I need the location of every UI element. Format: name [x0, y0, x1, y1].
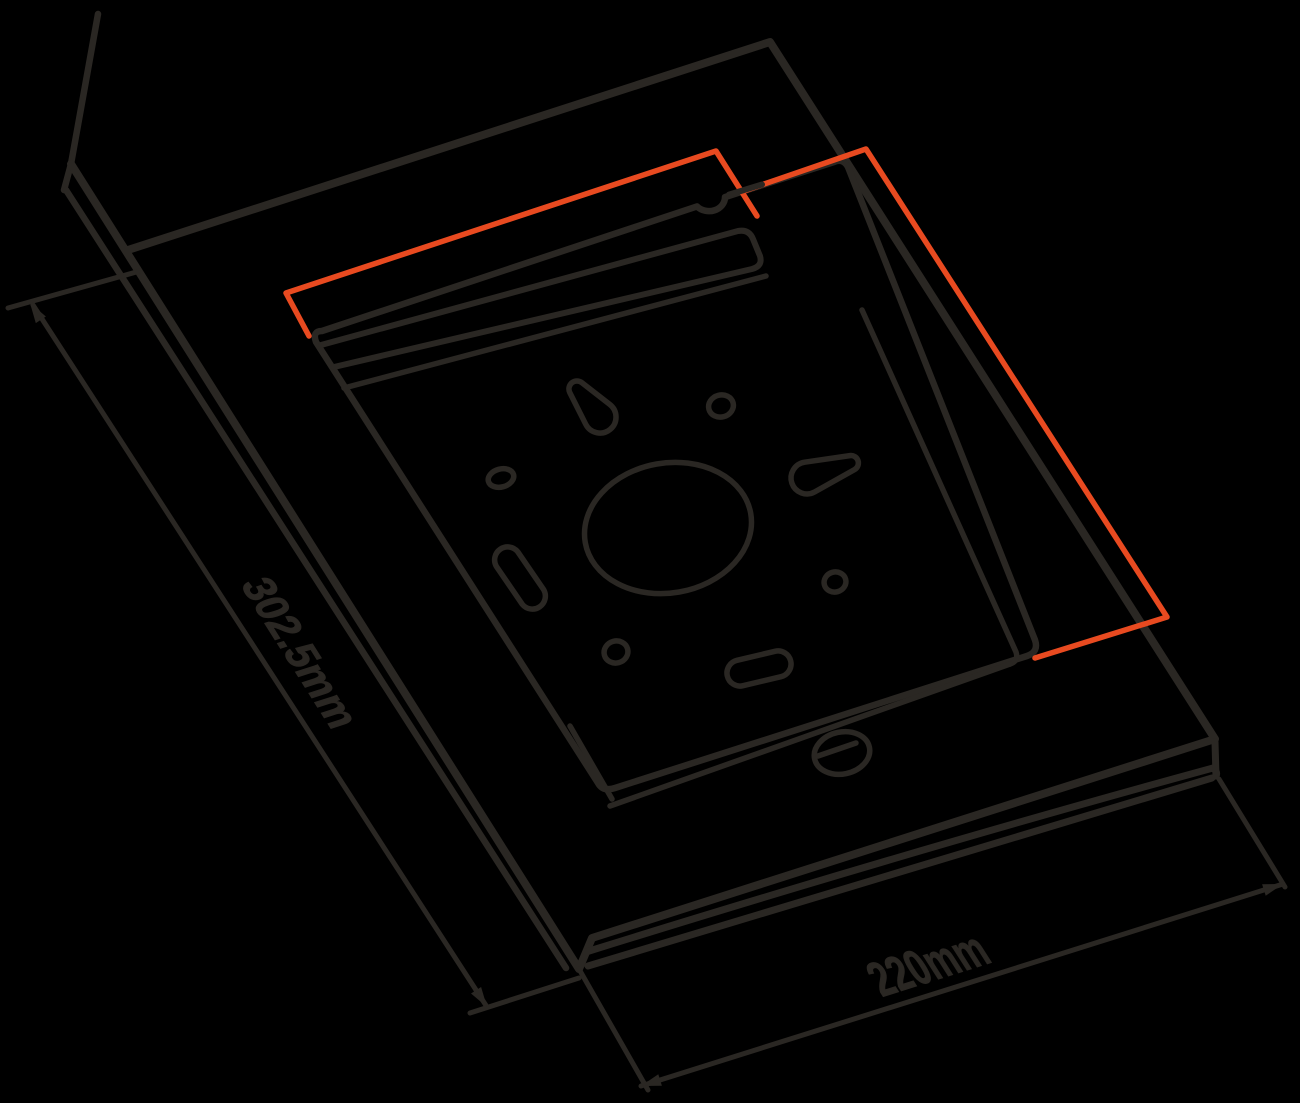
- svg-text:220mm: 220mm: [857, 923, 1000, 1007]
- svg-text:302.5mm: 302.5mm: [231, 572, 370, 734]
